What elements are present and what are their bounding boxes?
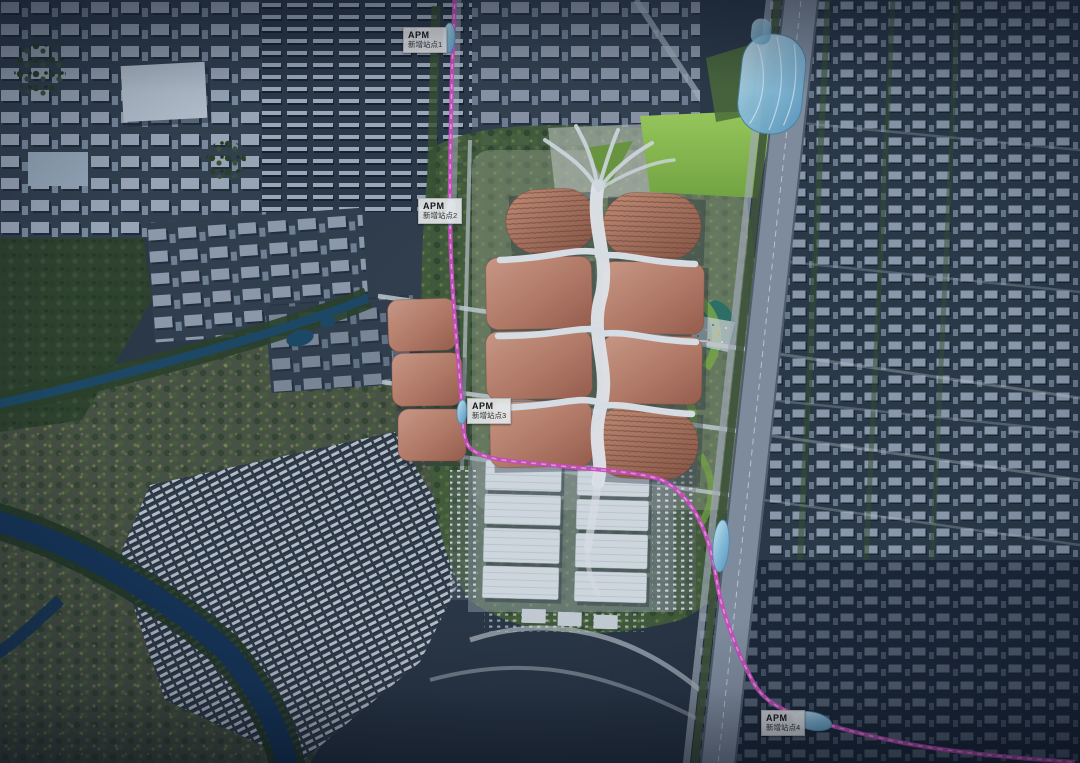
apm-station-label-2: APM 新增站点2 bbox=[418, 198, 462, 224]
masterplan-screenshot: APM 新增站点1 APM 新增站点2 APM 新增站点3 APM 新增站点4 bbox=[0, 0, 1080, 763]
apm-station-label-3: APM 新增站点3 bbox=[467, 398, 511, 424]
apm-station-label-3-subtitle: 新增站点3 bbox=[472, 412, 506, 421]
apm-station-label-4: APM 新增站点4 bbox=[761, 710, 805, 736]
apm-station-label-1: APM 新增站点1 bbox=[403, 27, 447, 53]
apm-station-label-1-subtitle: 新增站点1 bbox=[408, 41, 442, 50]
apm-station-label-4-subtitle: 新增站点4 bbox=[766, 724, 800, 733]
masterplan-render bbox=[0, 0, 1080, 763]
apm-station-label-2-subtitle: 新增站点2 bbox=[423, 212, 457, 221]
